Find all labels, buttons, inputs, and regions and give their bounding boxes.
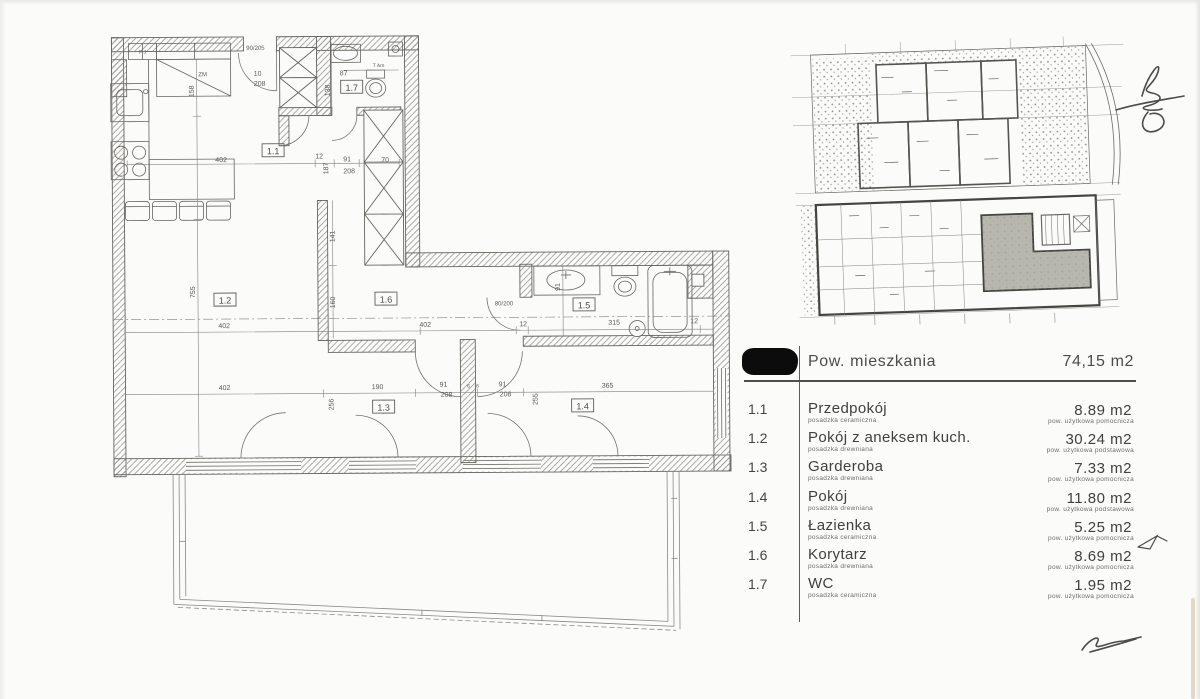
signature-bottom-right	[1082, 637, 1141, 652]
room-area: 5.25 m2	[1074, 519, 1132, 536]
room-area: 8.69 m2	[1074, 548, 1132, 565]
bar-stools	[125, 201, 230, 221]
dimension-label: 402	[215, 157, 227, 164]
dimension-label: 190	[372, 384, 384, 391]
total-area-value: 74,15 m2	[1062, 353, 1134, 371]
dimension-label: 80/200	[495, 301, 514, 307]
room-area: 11.80 m2	[1067, 490, 1132, 507]
room-name: WC	[808, 575, 834, 592]
dimension-label: 256	[329, 398, 336, 410]
dimension-label: 755	[190, 286, 197, 298]
area-summary-table: Pow. mieszkania 74,15 m2 1.1 Przedpokój …	[740, 344, 1140, 629]
dimension-label: 402	[419, 322, 431, 329]
pen-arrow-mark	[1138, 536, 1167, 549]
area-type: pow. użytkowa pomocnicza	[1048, 564, 1134, 571]
room-number: 1.1	[748, 401, 782, 417]
table-row: 1.1 Przedpokój posadzka ceramiczna 8.89 …	[740, 400, 1140, 429]
dimension-label: 12	[519, 321, 527, 328]
room-label: 1.5	[578, 300, 591, 310]
area-type: pow. użytkowa podstawowa	[1047, 506, 1134, 513]
balcony	[173, 471, 680, 633]
dimension-label: 138	[325, 84, 332, 96]
dimension-label: 187	[323, 162, 330, 174]
dimension-label: F J	[139, 50, 146, 56]
scanned-floorplan-document: { "summary_table": { "header": { "label"…	[0, 0, 1200, 699]
dimension-label: 158	[189, 85, 196, 97]
signature-top-right	[1116, 67, 1184, 132]
dimension-label: 90/205	[246, 46, 265, 52]
floor-type: posadzka ceramiczna	[808, 592, 877, 599]
dimension-label: 160	[330, 296, 337, 308]
area-type: pow. użytkowa podstawowa	[1047, 447, 1134, 454]
dimension-label: 87	[340, 70, 348, 77]
dimension-label: 255	[533, 393, 540, 405]
area-type: pow. użytkowa pomocnicza	[1048, 593, 1134, 600]
dimension-label: 6	[476, 384, 479, 390]
area-type: pow. użytkowa pomocnicza	[1048, 535, 1134, 542]
room-label: 1.4	[576, 401, 589, 411]
dimension-label: ZM	[198, 72, 207, 78]
dimension-label: 6	[467, 384, 470, 390]
room-label: 1.2	[219, 296, 232, 306]
room-label: 1.7	[345, 83, 358, 93]
table-header-rule	[744, 380, 1136, 382]
room-area: 7.33 m2	[1074, 460, 1132, 477]
room-label: 1.3	[377, 403, 390, 413]
dimension-label: 402	[219, 385, 231, 392]
table-row: 1.5 Łazienka posadzka ceramiczna 5.25 m2…	[740, 517, 1140, 546]
room-name: Korytarz	[808, 546, 867, 563]
room-name: Pokój z aneksem kuch.	[808, 429, 971, 446]
floor-type: posadzka ceramiczna	[808, 417, 877, 424]
dimension-label: 141	[330, 230, 337, 242]
dimension-lines	[111, 40, 731, 457]
room-name: Pokój	[808, 488, 848, 505]
area-type: pow. użytkowa pomocnicza	[1048, 476, 1134, 483]
dimension-label: 315	[608, 320, 620, 327]
room-number: 1.3	[748, 459, 782, 475]
dimension-label: 208	[343, 168, 355, 175]
site-stairwell	[1041, 214, 1090, 246]
room-area: 30.24 m2	[1065, 431, 1132, 448]
dimension-label: 12	[315, 153, 323, 160]
dimension-label: 365	[602, 383, 614, 390]
room-name: Łazienka	[808, 517, 871, 534]
room-number: 1.4	[748, 489, 782, 505]
site-lower-building	[801, 195, 1118, 332]
floor-type: posadzka drewniana	[808, 563, 873, 570]
room-label: 1.6	[380, 295, 393, 305]
table-row: 1.3 Garderoba posadzka drewniana 7.33 m2…	[740, 458, 1140, 487]
dimension-label: 91	[343, 156, 351, 163]
interior-walls	[278, 34, 714, 464]
floor-type: posadzka ceramiczna	[808, 534, 877, 541]
table-header-label: Pow. mieszkania	[808, 353, 936, 371]
floor-type: posadzka drewniana	[808, 505, 873, 512]
dimension-label: 70	[381, 157, 389, 164]
dimension-label: 12	[690, 318, 698, 325]
room-name: Przedpokój	[808, 400, 887, 417]
bathroom-fixtures	[534, 265, 692, 338]
table-row: 1.4 Pokój posadzka drewniana 11.80 m2 po…	[740, 488, 1140, 517]
room-label: 1.1	[267, 146, 280, 156]
table-row: 1.2 Pokój z aneksem kuch. posadzka drewn…	[740, 429, 1140, 458]
table-row: 1.6 Korytarz posadzka drewniana 8.69 m2 …	[740, 546, 1140, 575]
floor-type: posadzka drewniana	[808, 475, 873, 482]
kitchen-island	[149, 159, 234, 200]
room-area: 1.95 m2	[1074, 577, 1132, 594]
room-number: 1.7	[748, 576, 782, 592]
dimension-label: 91	[499, 381, 507, 388]
dimension-label: 208	[441, 392, 453, 399]
wc-toilet	[366, 79, 386, 97]
site-upper-building	[810, 42, 1121, 195]
redaction-blob	[742, 348, 798, 375]
dimension-label: 10	[254, 71, 262, 78]
table-row: 1.7 WC posadzka ceramiczna 1.95 m2 pow. …	[740, 575, 1140, 604]
area-type: pow. użytkowa pomocnicza	[1048, 418, 1134, 425]
dimension-label: 91	[440, 382, 448, 389]
room-number: 1.5	[748, 518, 782, 534]
dimension-label: 402	[218, 323, 230, 330]
room-number: 1.6	[748, 547, 782, 563]
dimension-label: T Am	[373, 63, 385, 69]
room-number: 1.2	[748, 430, 782, 446]
room-name: Garderoba	[808, 458, 883, 475]
dimension-label: 208	[254, 81, 266, 88]
site-plan	[790, 34, 1133, 331]
floor-type: posadzka drewniana	[808, 446, 873, 453]
dimension-label: 91	[555, 283, 562, 291]
toilet	[614, 277, 636, 296]
outer-walls	[111, 34, 731, 477]
room-area: 8.89 m2	[1074, 402, 1132, 419]
kitchen-fixtures	[110, 43, 234, 221]
dimension-label: 208	[500, 391, 512, 398]
washing-machine	[629, 321, 645, 337]
